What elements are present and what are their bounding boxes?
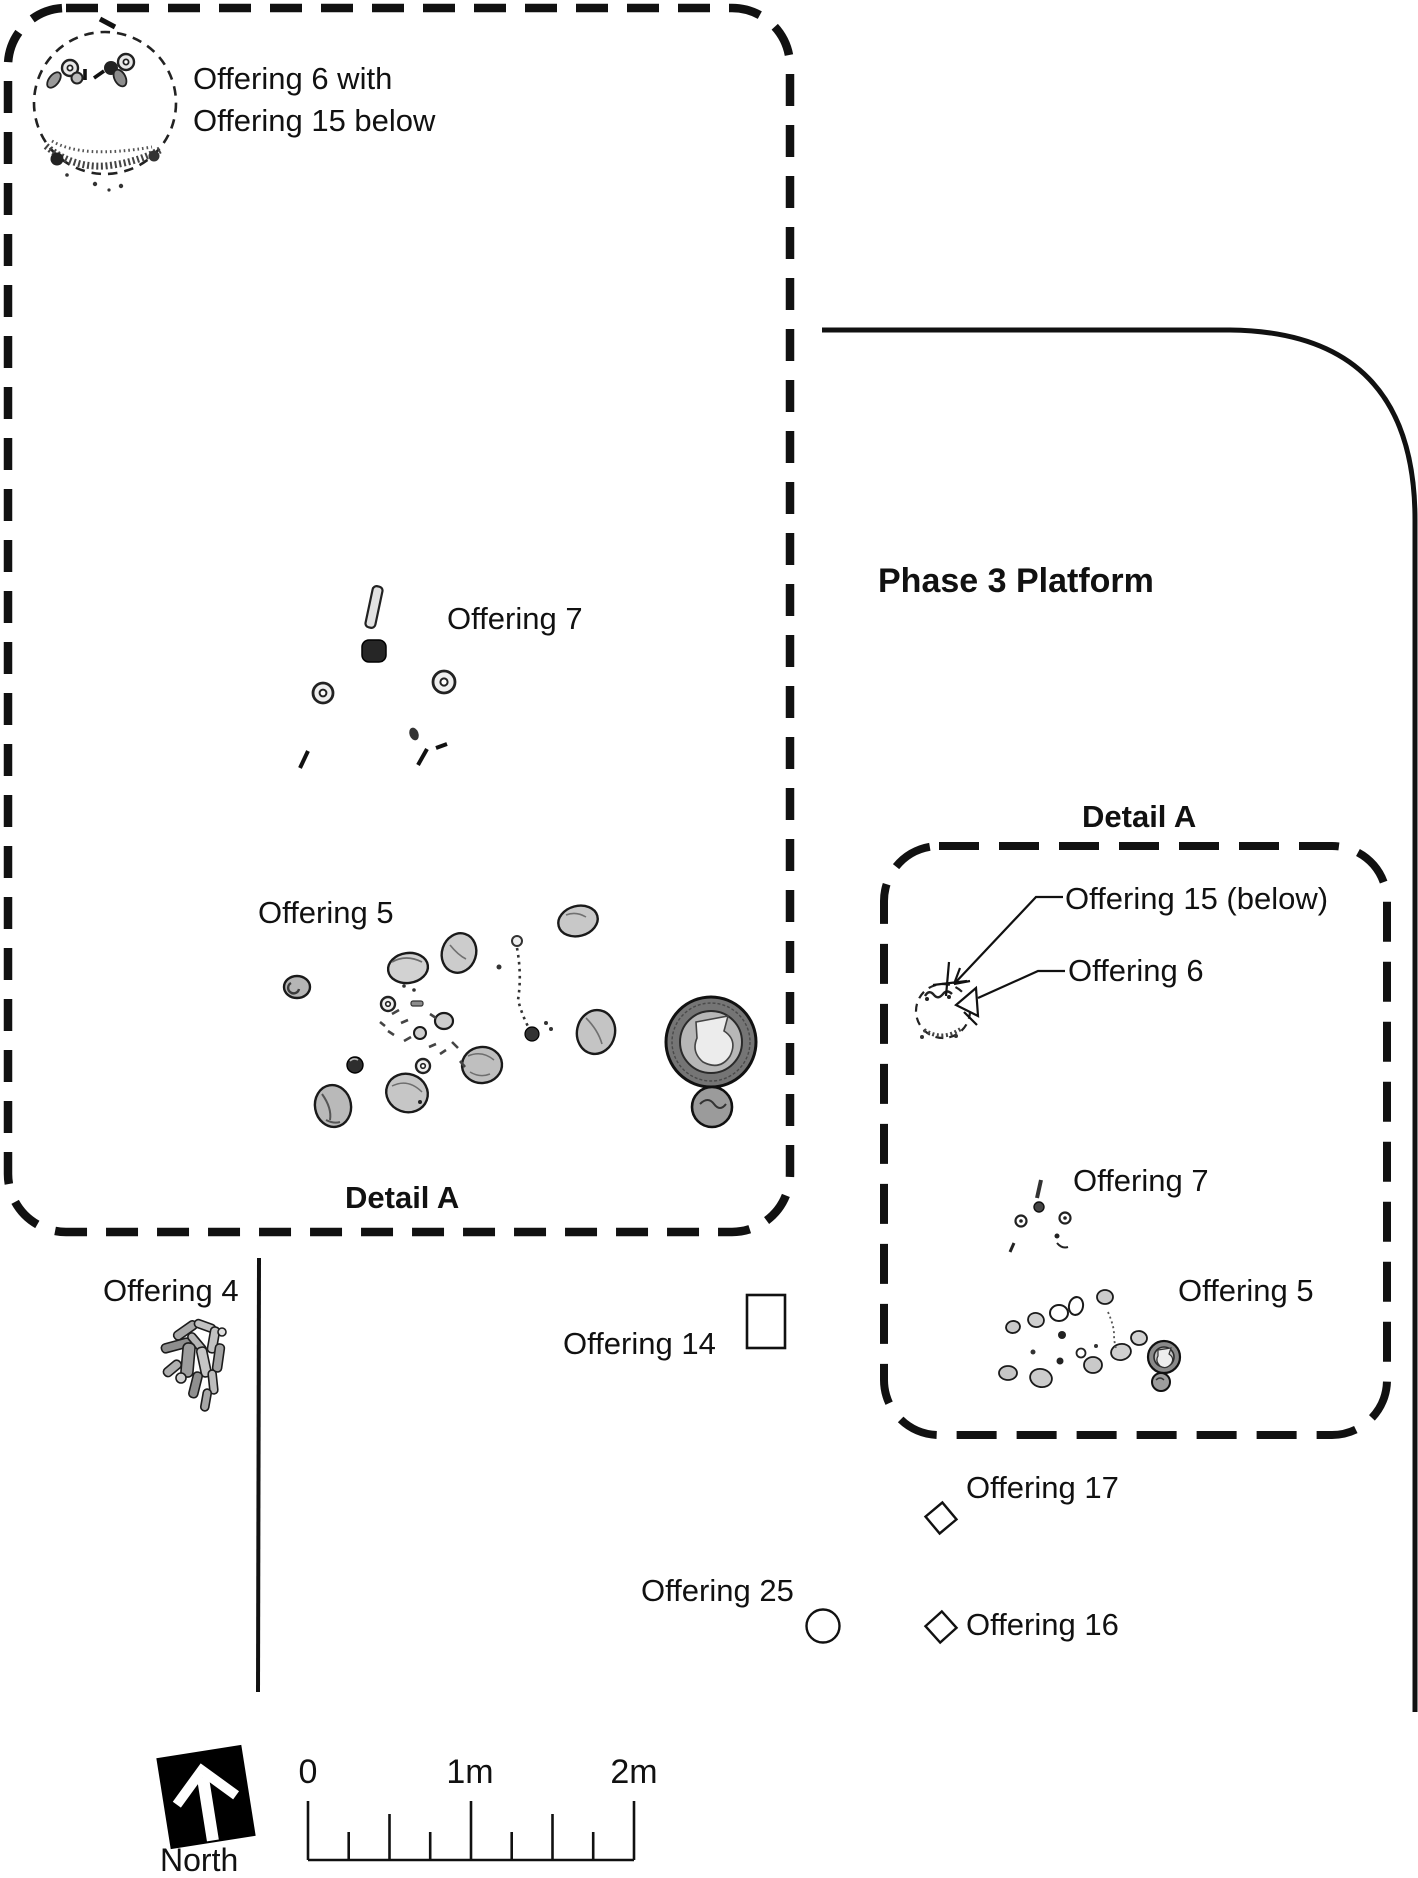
stone [1084, 1357, 1102, 1373]
label-offering-4: Offering 4 [103, 1273, 239, 1309]
stone [1130, 1330, 1148, 1346]
earspool-hole [440, 678, 447, 685]
bead-trail [517, 948, 530, 1030]
artifact-dot [65, 173, 69, 177]
dark-bead-artifact [525, 1027, 539, 1041]
label-offering-5-right: Offering 5 [1178, 1273, 1314, 1309]
stone [1097, 1290, 1113, 1304]
scale-bar [308, 1801, 634, 1860]
label-detail-a-left: Detail A [345, 1180, 459, 1216]
dark-bead-artifact [1034, 1202, 1044, 1212]
pebble-band [52, 141, 152, 152]
offering-14-outline [747, 1295, 785, 1348]
stone [1067, 1296, 1084, 1317]
artifact-dot [497, 965, 502, 970]
vessel-contents [1157, 1348, 1173, 1368]
bead-artifact [408, 726, 421, 741]
artifact-fragment [100, 19, 115, 27]
offering-4-cluster [160, 1258, 259, 1692]
label-offering-25: Offering 25 [641, 1573, 794, 1609]
label-offering-16: Offering 16 [966, 1607, 1119, 1643]
stone [386, 950, 430, 985]
offering-14-feature [747, 1295, 785, 1348]
label-offering-6-with: Offering 6 with [193, 58, 435, 100]
earspool-artifact [1077, 1349, 1086, 1358]
dark-bead-artifact [1057, 1358, 1064, 1365]
artifact-dot [1094, 1344, 1098, 1348]
artifact-dot [549, 1027, 553, 1031]
label-offering-7-right: Offering 7 [1073, 1163, 1209, 1199]
label-offering-15-callout: Offering 15 (below) [1065, 881, 1328, 917]
rod-artifact [365, 585, 384, 628]
artifact-dot [412, 988, 416, 992]
earspool-hole [1019, 1219, 1023, 1223]
label-offering-17: Offering 17 [966, 1470, 1119, 1506]
label-offering-6-callout: Offering 6 [1068, 953, 1204, 989]
excavation-edge-line [258, 1258, 259, 1692]
site-plan-page: { "figure": { "title_area": "Phase 3 Pla… [0, 0, 1418, 1873]
offering-17-outline [926, 1503, 957, 1534]
detail-a-box [884, 846, 1387, 1435]
scale-label-2m: 2m [594, 1753, 674, 1792]
artifact-fragment [411, 1001, 423, 1006]
artifact-fragment [418, 749, 427, 765]
artifact-dot [93, 182, 97, 186]
artifact-fragment [300, 751, 308, 768]
rod-artifact [1037, 1180, 1041, 1198]
shell-ring-hole [123, 59, 128, 64]
earspool-hole [421, 1064, 426, 1069]
bone-bundle [160, 1318, 226, 1411]
offering-25-feature [807, 1610, 840, 1643]
shell-artifact [45, 70, 64, 90]
label-offering-6-15: Offering 6 with Offering 15 below [193, 58, 435, 142]
artifact-dot [107, 188, 110, 191]
label-offering-15-below: Offering 15 below [193, 100, 435, 142]
bead-artifact [512, 936, 522, 946]
artifact-fragment [1057, 1243, 1068, 1248]
small-vessel [1152, 1373, 1170, 1391]
offering-25-outline [807, 1610, 840, 1643]
stone [381, 1068, 433, 1118]
stone [1005, 1320, 1021, 1334]
stone [1110, 1342, 1133, 1362]
offering-16-outline [925, 1611, 956, 1642]
artifact-dot [402, 984, 406, 988]
offering-5-cluster [284, 901, 756, 1129]
stone [461, 1045, 504, 1084]
offering-7-cluster [300, 585, 455, 768]
dark-bead-artifact [149, 151, 160, 162]
label-offering-7-left: Offering 7 [447, 601, 583, 637]
offering-6-15-feature [34, 19, 176, 192]
dark-bead-artifact [1058, 1331, 1066, 1339]
arrowhead [956, 988, 978, 1016]
artifact-dot [947, 995, 951, 999]
earspool-hole [320, 690, 327, 697]
artifact-dot [920, 1035, 924, 1039]
dark-stone-artifact [362, 640, 386, 662]
label-phase-3-platform: Phase 3 Platform [878, 563, 1154, 599]
artifact-dot [1055, 1234, 1060, 1239]
artifact-dot [418, 1100, 422, 1104]
offering-6-leader [956, 971, 1065, 1025]
bead-trail [1108, 1312, 1116, 1348]
detail-offering-7-cluster [1010, 1180, 1071, 1252]
stone [435, 1013, 453, 1029]
label-detail-a-right: Detail A [1082, 799, 1196, 835]
dark-bead-artifact [51, 153, 64, 166]
label-offering-5-left: Offering 5 [258, 895, 394, 931]
artifact-dot [119, 184, 123, 188]
stone [1050, 1305, 1068, 1321]
offering-17-feature [926, 1503, 957, 1534]
stone [414, 1027, 426, 1039]
artifact-dot [544, 1021, 548, 1025]
scale-label-0: 0 [288, 1753, 328, 1792]
shell-ring-hole [67, 65, 72, 70]
stone [1026, 1311, 1045, 1329]
earspool-hole [1063, 1216, 1067, 1220]
stone [999, 1366, 1017, 1380]
stone [1028, 1367, 1054, 1390]
stone [555, 901, 601, 940]
artifact-fragment [94, 71, 104, 78]
artifact-dot [1031, 1350, 1036, 1355]
bead-artifact [72, 73, 83, 84]
small-vessel [692, 1087, 732, 1127]
artifact-dot [925, 997, 929, 1001]
artifact-fragment [1010, 1243, 1014, 1252]
offering-16-feature [925, 1611, 956, 1642]
detail-offering-5-cluster [999, 1290, 1180, 1391]
north-arrow [156, 1745, 255, 1849]
earspool-hole [386, 1002, 391, 1007]
label-offering-14: Offering 14 [563, 1326, 716, 1362]
scale-label-1m: 1m [430, 1753, 510, 1792]
artifact-dot [954, 1034, 958, 1038]
stone [437, 929, 482, 978]
artifact-fragment [436, 744, 447, 748]
